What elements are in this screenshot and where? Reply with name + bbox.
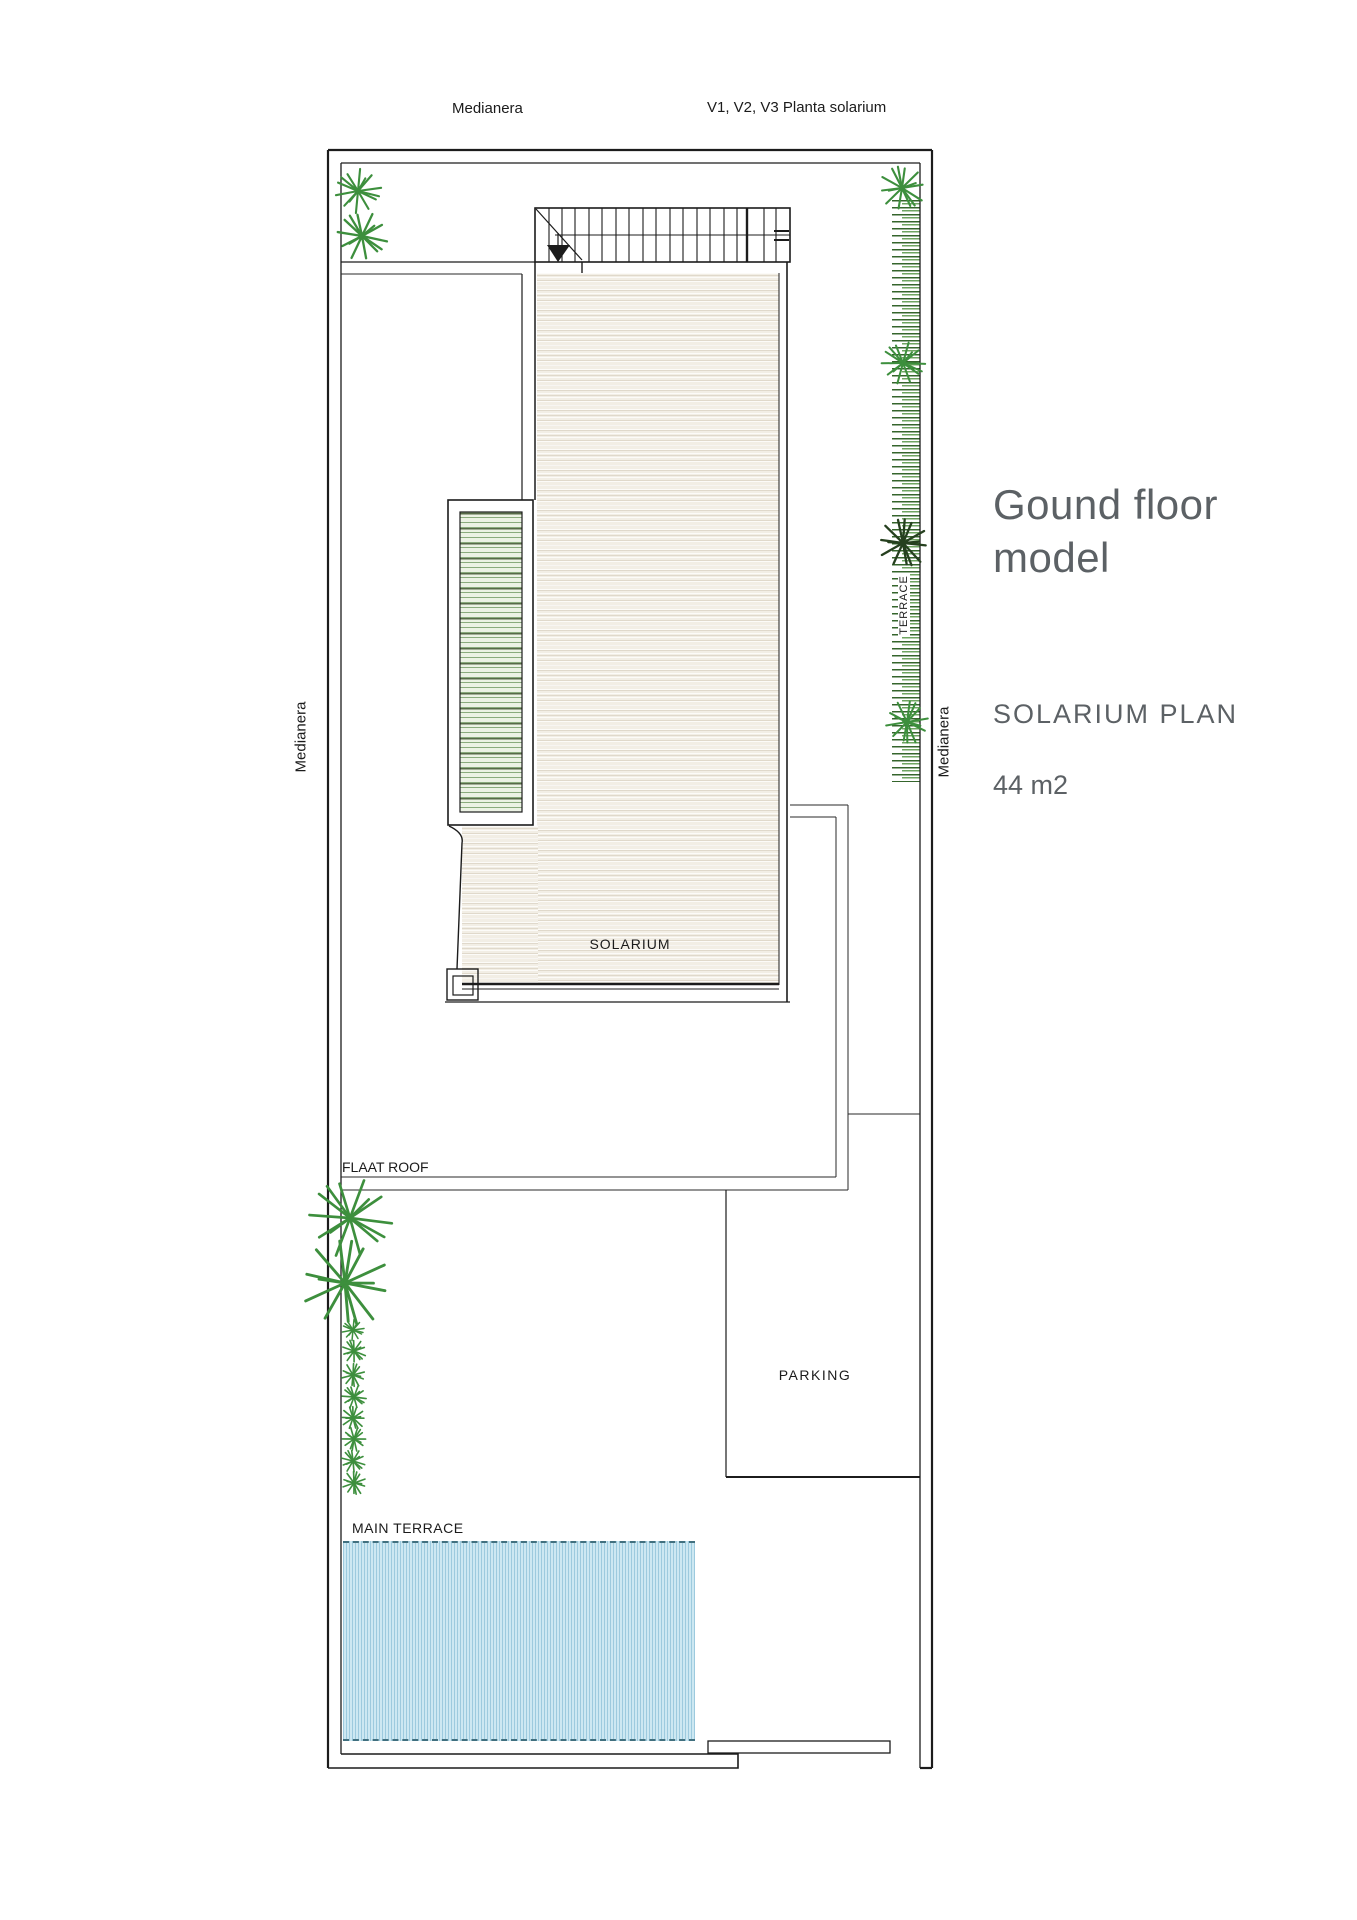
medianera-top-label: Medianera (452, 100, 523, 117)
plan-reference-label: V1, V2, V3 Planta solarium (707, 99, 886, 116)
terrace-label: TERRACE (898, 573, 910, 637)
title-line-1: Gound floor (993, 478, 1218, 531)
plan-subtitle: SOLARIUM PLAN (993, 699, 1238, 730)
stairs (341, 208, 790, 273)
main-terrace-label: MAIN TERRACE (352, 1520, 464, 1536)
parking-label: PARKING (779, 1367, 851, 1383)
parking-outline (726, 1190, 920, 1477)
plan-area: 44 m2 (993, 770, 1068, 801)
flat-roof-outline (341, 274, 920, 1190)
medianera-left-label: Medianera (293, 702, 310, 773)
plants (286, 157, 937, 1499)
flat-roof-label: FLAAT ROOF (342, 1159, 429, 1175)
solarium-label: SOLARIUM (589, 936, 670, 952)
solarium-outline (445, 262, 790, 1002)
plan-linework (0, 0, 1357, 1920)
title-line-2: model (993, 531, 1218, 584)
title-block: Gound floor model (993, 478, 1218, 584)
solarium-floor-plan: Medianera V1, V2, V3 Planta solarium Med… (0, 0, 1357, 1920)
medianera-right-label: Medianera (936, 707, 953, 778)
stair-direction-arrow (547, 245, 570, 262)
